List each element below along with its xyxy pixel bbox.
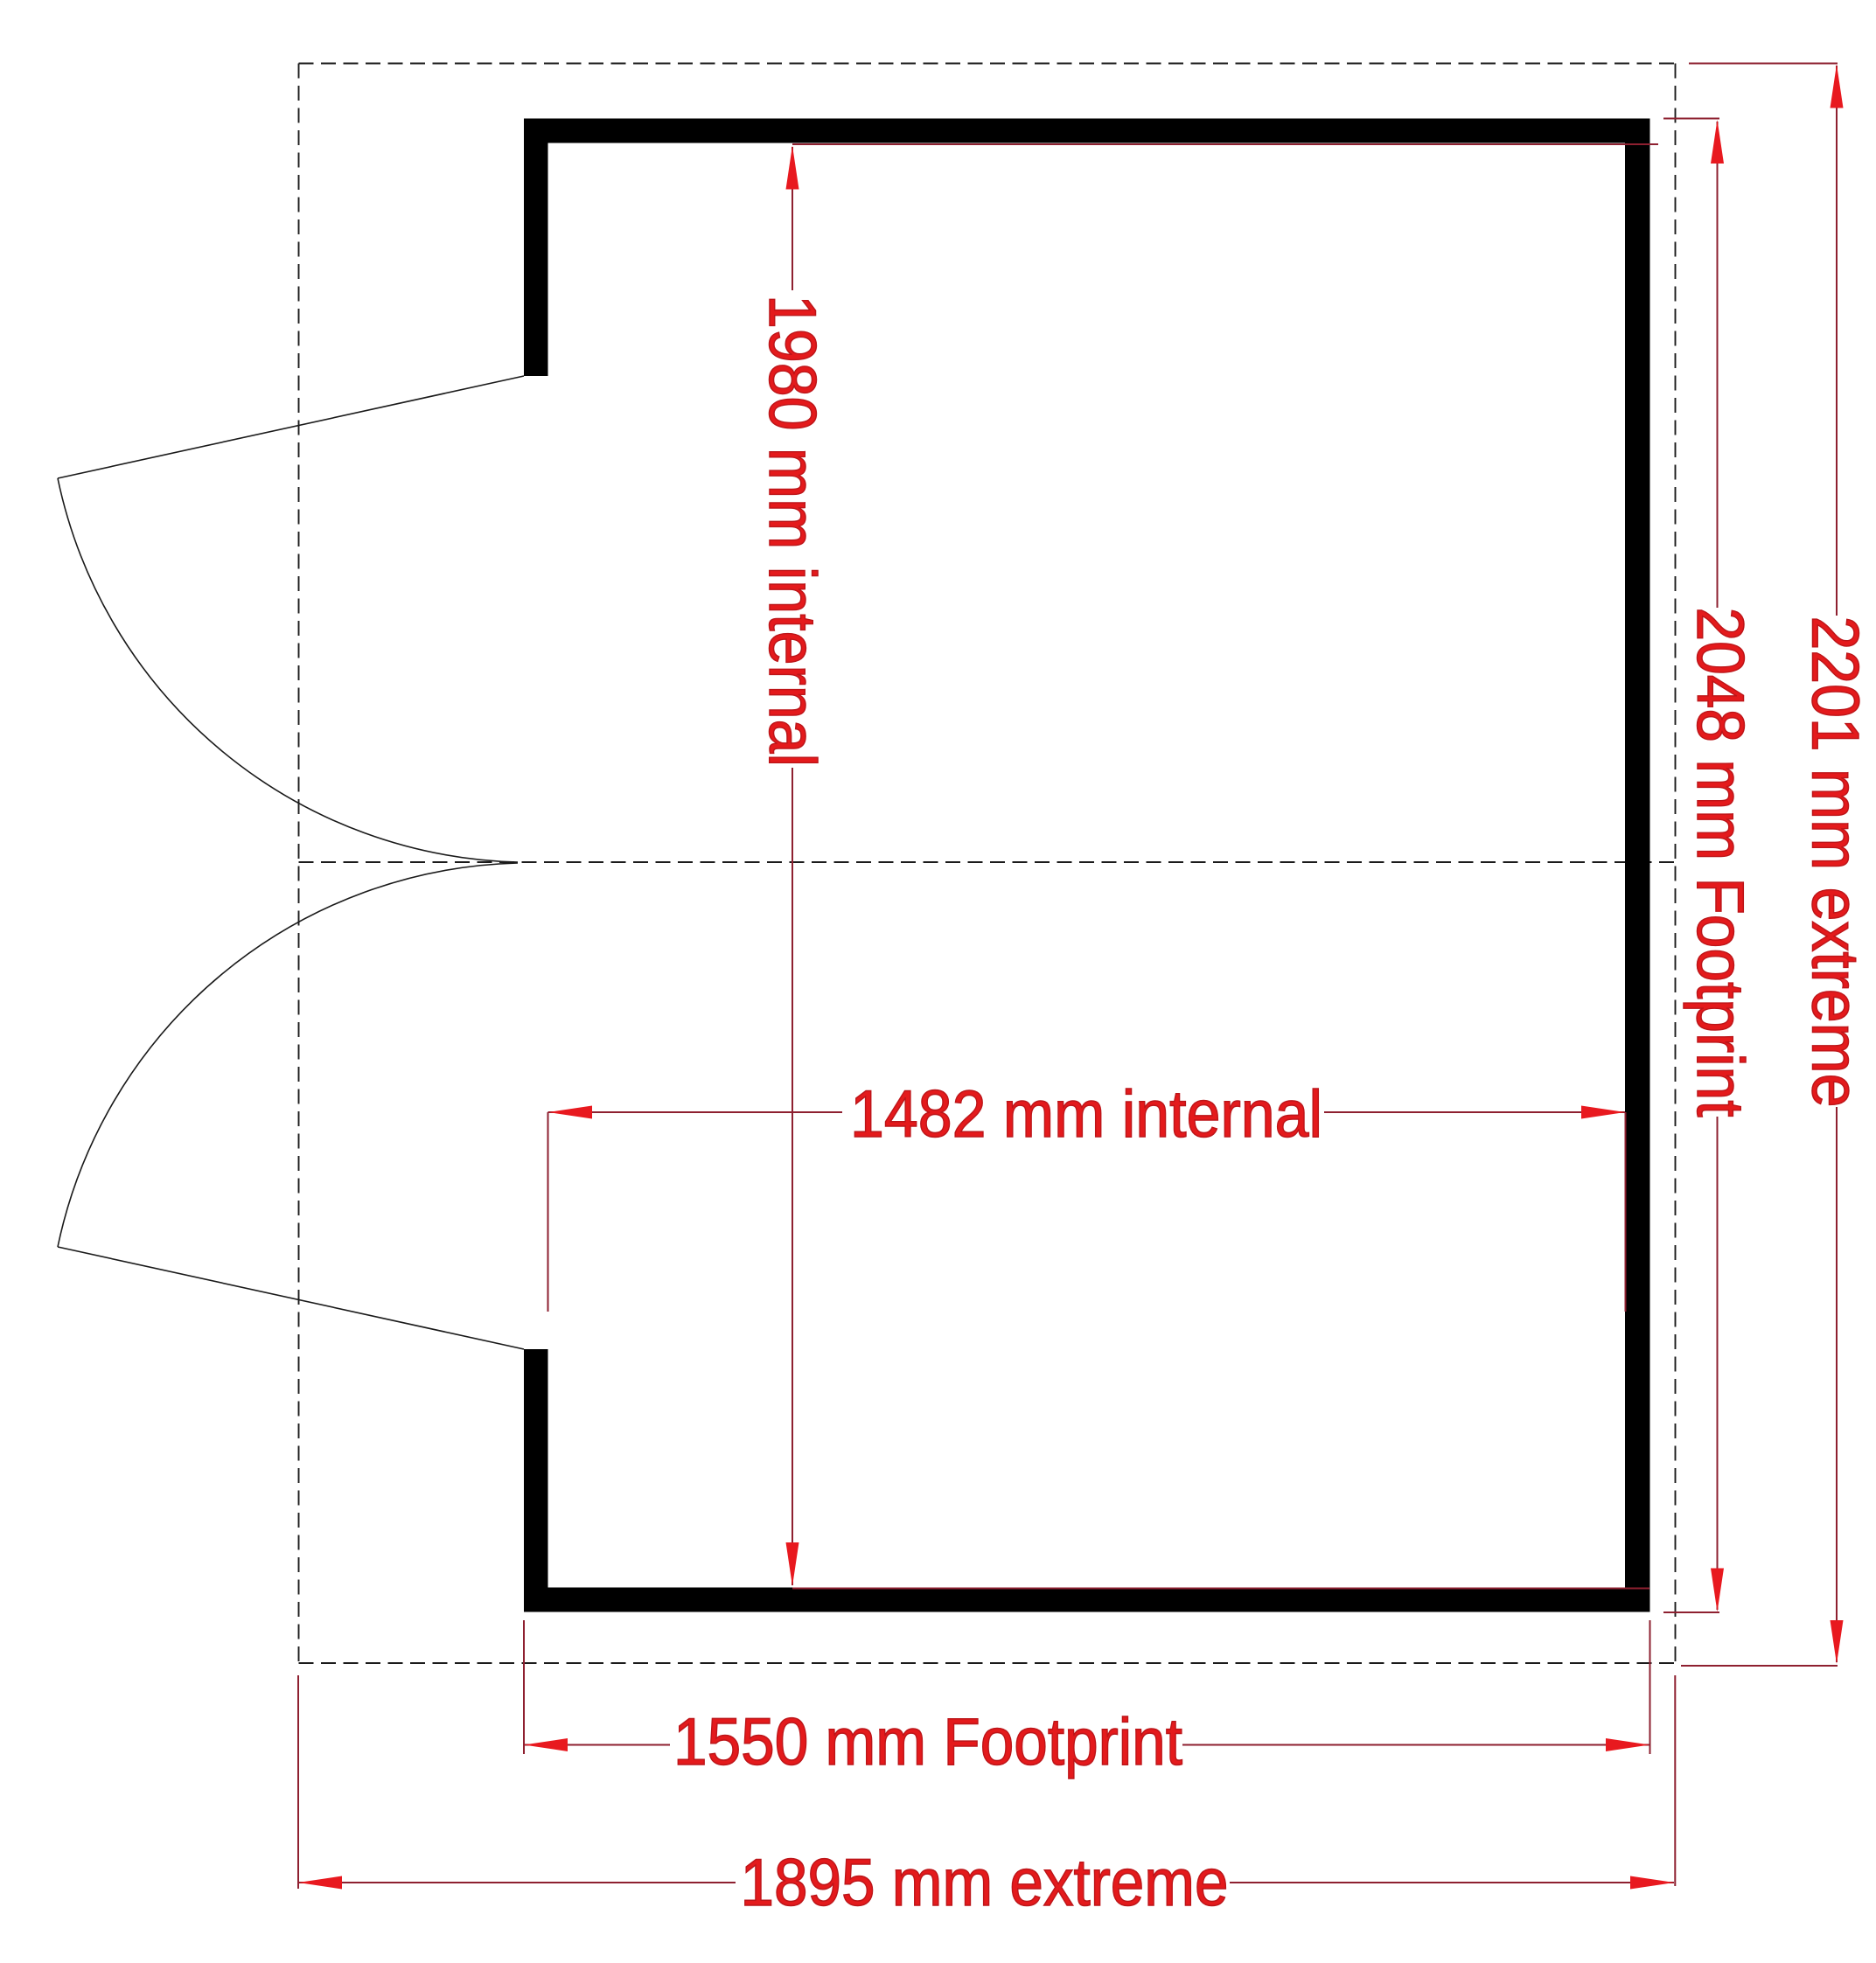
- svg-text:2201 mm extreme: 2201 mm extreme: [1798, 616, 1873, 1108]
- svg-text:1980 mm internal: 1980 mm internal: [755, 295, 829, 767]
- svg-text:1482 mm internal: 1482 mm internal: [850, 1077, 1322, 1152]
- svg-text:1895 mm extreme: 1895 mm extreme: [741, 1846, 1229, 1920]
- svg-text:2048 mm Footprint: 2048 mm Footprint: [1683, 608, 1757, 1117]
- svg-text:1550 mm Footprint: 1550 mm Footprint: [673, 1705, 1182, 1779]
